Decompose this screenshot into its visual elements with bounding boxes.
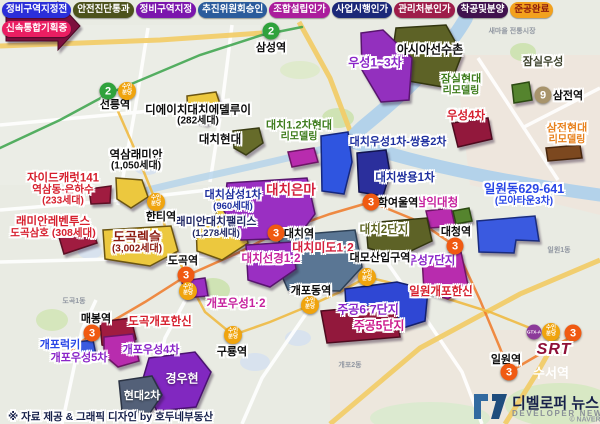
complex-label: 개포럭키 bbox=[40, 340, 80, 352]
legend-item: 준공완료 bbox=[510, 2, 553, 18]
subway-line-badge: 9 bbox=[535, 87, 552, 104]
station-label: 삼전역 bbox=[553, 87, 583, 103]
station-label: 매봉역 bbox=[81, 310, 111, 326]
complex-label: 대치삼성1차(960세대) bbox=[205, 190, 262, 212]
subway-line-badge: 2 bbox=[100, 83, 117, 100]
suin-bundang-line-badge: 수인분당 bbox=[542, 323, 560, 341]
suseo-station-label: 수서역 bbox=[533, 363, 569, 382]
subway-line-badge: 3 bbox=[565, 325, 582, 342]
complex-label: 주공6·7단지 bbox=[337, 304, 399, 317]
subway-line-badge: 3 bbox=[501, 364, 518, 381]
legend-item: 신속통합기획중 bbox=[2, 21, 71, 37]
subway-line-badge: 3 bbox=[268, 225, 285, 242]
complex-label: 우성7단지 bbox=[407, 255, 456, 267]
suin-bundang-line-badge: 수인분당 bbox=[118, 82, 136, 100]
complex-label: 삼전현대리모델링 bbox=[547, 124, 587, 147]
complex-label: 역삼래미안(1,050세대) bbox=[110, 149, 163, 172]
map-area-label: 개포2동 bbox=[338, 360, 361, 370]
srt-label: SRT bbox=[537, 341, 572, 359]
complex-label: 잠실현대리모델링 bbox=[441, 75, 481, 98]
complex-label: 대치현대 bbox=[199, 134, 241, 146]
suin-bundang-line-badge: 수인분당 bbox=[179, 282, 197, 300]
suin-bundang-line-badge: 수인분당 bbox=[358, 268, 376, 286]
station-label: 구룡역 bbox=[217, 343, 247, 359]
complex-label: 개포우성1·2 bbox=[207, 298, 266, 310]
legend-item: 관리처분인가 bbox=[394, 2, 454, 18]
suin-bundang-line-badge: 수인분당 bbox=[301, 296, 319, 314]
logo-subtitle: DEVELOPER NEWS bbox=[512, 409, 600, 418]
map-area-label: 새마을 전통시장 bbox=[488, 26, 535, 36]
complex-label: 자이드캐럿141역삼동-은하수(233세대) bbox=[27, 173, 99, 208]
station-label: 학여울역 bbox=[378, 194, 418, 210]
complex-label: 아시아선수촌 bbox=[397, 44, 463, 57]
gtx-a-line-badge: GTX-A bbox=[527, 325, 542, 340]
legend-item: 추진위원회승인 bbox=[198, 2, 267, 18]
complex-label: 일원동629-641(모아타운3차) bbox=[484, 183, 564, 207]
suin-bundang-line-badge: 수인분당 bbox=[147, 193, 165, 211]
complex-label: 래미안레벤투스도곡삼호 (308세대) bbox=[10, 216, 95, 240]
map-area-label: 도곡1동 bbox=[62, 296, 85, 306]
station-label: 대모산입구역 bbox=[350, 249, 411, 265]
subway-line-badge: 3 bbox=[84, 325, 101, 342]
legend-row-2: 신속통합기획중 bbox=[2, 21, 71, 37]
map-area-label: 일원1동 bbox=[547, 245, 570, 255]
legend-item: 정비구역지정전 bbox=[2, 2, 71, 18]
complex-label: 대치은마 bbox=[266, 184, 316, 199]
complex-label: 개포우성4차 bbox=[123, 345, 180, 357]
subway-line-badge: 2 bbox=[263, 23, 280, 40]
complex-label: 대치선경1·2 bbox=[242, 253, 301, 265]
complex-label: 대치1,2차현대리모델링 bbox=[266, 121, 332, 144]
complex-label: 일원개포한신 bbox=[409, 286, 472, 298]
footer-credit: ※ 자료 제공 & 그래픽 디자인 by 호두네부동산 bbox=[8, 409, 213, 424]
complex-label: 삼익대청 bbox=[416, 197, 458, 209]
legend-item: 정비구역지정 bbox=[136, 2, 196, 18]
complex-label: 대치2단지 bbox=[360, 224, 409, 236]
developer-news-logo-icon bbox=[470, 388, 510, 422]
complex-label: 래미안대치팰리스(1,278세대) bbox=[176, 217, 257, 239]
suin-bundang-line-badge: 수인분당 bbox=[224, 326, 242, 344]
complex-label: 디에이치대치에델루이(282세대) bbox=[145, 104, 251, 127]
label-layer: 삼성역2선릉역2수인분당한티역수인분당도곡역3수인분당매봉역3대치역3학여울역3… bbox=[0, 0, 600, 424]
station-label: 대치역 bbox=[284, 225, 314, 241]
complex-label: 도곡개포한신 bbox=[128, 316, 191, 328]
complex-label: 대치미도1·2 bbox=[292, 242, 354, 255]
station-label: 도곡역 bbox=[168, 252, 198, 268]
station-label: 한티역 bbox=[146, 208, 176, 224]
complex-label: 현대2차 bbox=[124, 391, 160, 403]
legend-row-1: 정비구역지정전안전진단통과정비구역지정추진위원회승인조합설립인가사업시행인가관리… bbox=[2, 2, 598, 18]
complex-label: 대치쌍용1차 bbox=[375, 172, 434, 184]
complex-label: 잠실우성 bbox=[523, 57, 563, 69]
subway-line-badge: 3 bbox=[447, 238, 464, 255]
complex-label: 개포우성5차 bbox=[51, 353, 108, 365]
legend-item: 안전진단통과 bbox=[73, 2, 133, 18]
complex-label: 우성1~3차 bbox=[348, 57, 401, 70]
complex-label: 경우현 bbox=[165, 373, 198, 386]
subway-line-badge: 3 bbox=[363, 194, 380, 211]
station-label: 삼성역 bbox=[256, 39, 286, 55]
legend-item: 사업시행인가 bbox=[332, 2, 392, 18]
subway-line-badge: 3 bbox=[178, 267, 195, 284]
legend-item: 조합설립인가 bbox=[269, 2, 329, 18]
complex-label: 주공5단지 bbox=[354, 320, 405, 333]
complex-label: 대치우성1차-쌍용2차 bbox=[350, 137, 447, 149]
complex-label: 우성4차 bbox=[447, 110, 485, 122]
legend-item: 착공및분양 bbox=[457, 2, 509, 18]
complex-label: 도곡렉슬(3,002세대) bbox=[112, 231, 162, 256]
map-canvas: 삼성역2선릉역2수인분당한티역수인분당도곡역3수인분당매봉역3대치역3학여울역3… bbox=[0, 0, 600, 424]
